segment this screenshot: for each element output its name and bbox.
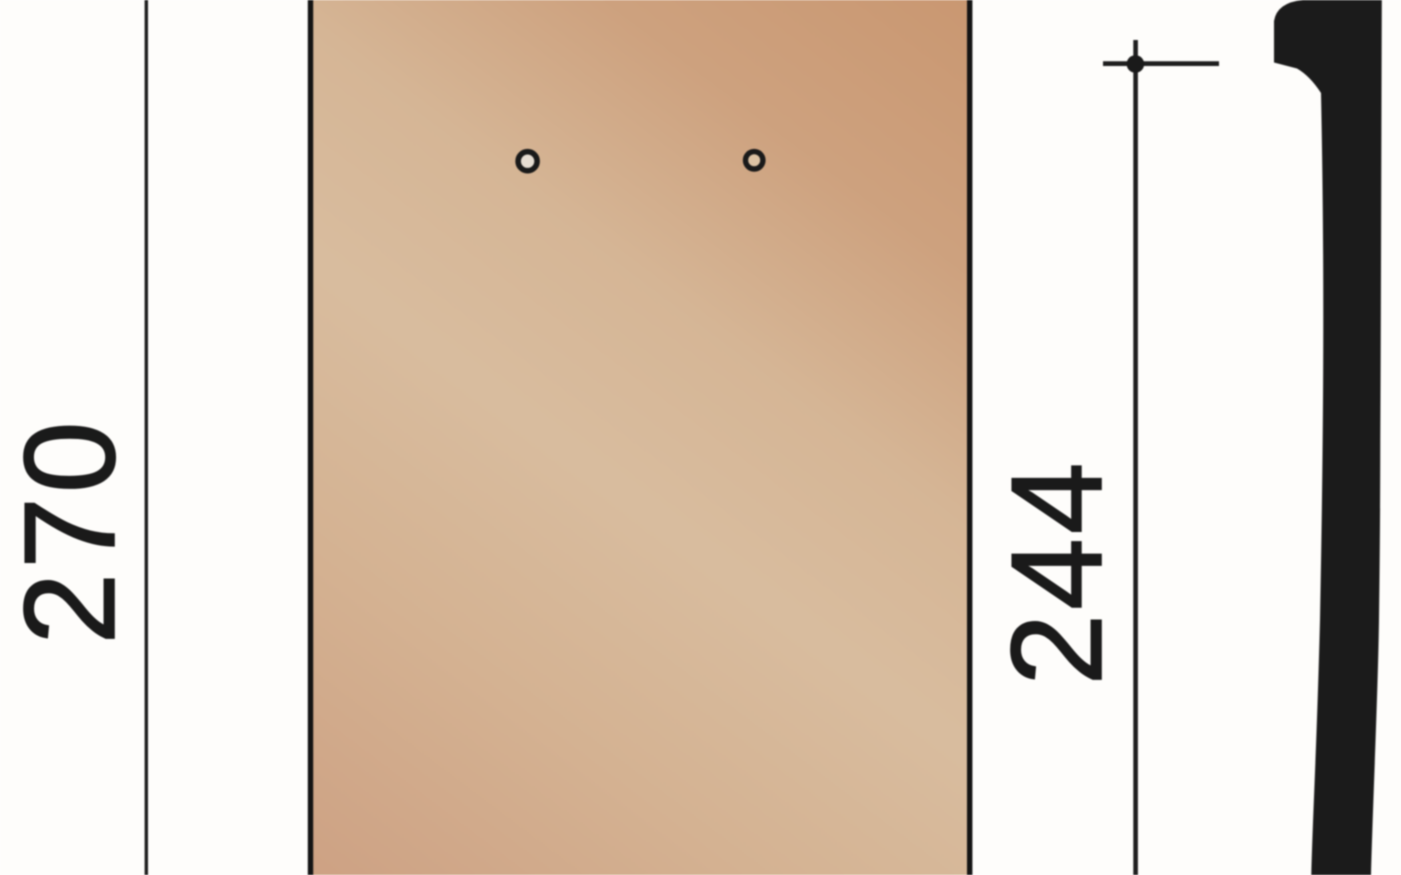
svg-text:270: 270 <box>0 417 142 644</box>
svg-text:244: 244 <box>985 458 1129 685</box>
